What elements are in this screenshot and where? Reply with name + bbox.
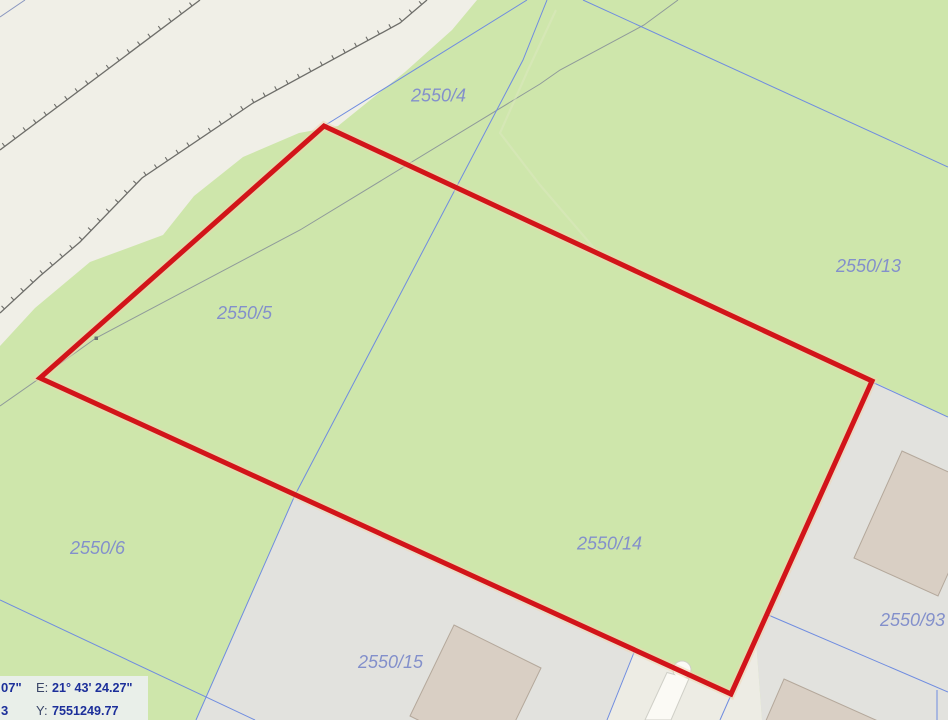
svg-text:21° 43' 24.27": 21° 43' 24.27": [52, 681, 133, 695]
svg-text:7551249.77: 7551249.77: [52, 704, 119, 718]
svg-text:2550/15: 2550/15: [357, 652, 424, 672]
svg-text:2550/13: 2550/13: [835, 256, 901, 276]
svg-text:07": 07": [1, 680, 22, 695]
svg-text:2550/93: 2550/93: [879, 610, 945, 630]
svg-text:Y:: Y:: [36, 703, 48, 718]
svg-text:2550/5: 2550/5: [216, 303, 273, 323]
svg-text:E:: E:: [36, 680, 48, 695]
svg-text:2550/4: 2550/4: [410, 86, 466, 106]
svg-text:2550/14: 2550/14: [576, 534, 642, 554]
svg-text:2550/6: 2550/6: [69, 538, 126, 558]
svg-text:3: 3: [1, 703, 8, 718]
